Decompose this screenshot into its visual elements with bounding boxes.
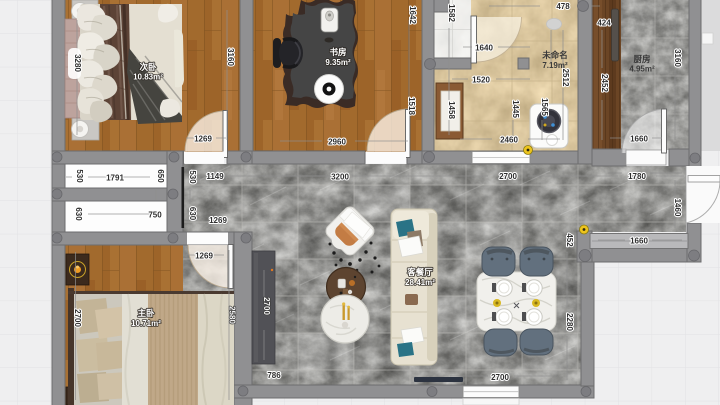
svg-text:530: 530 bbox=[188, 170, 197, 184]
svg-text:2700: 2700 bbox=[499, 172, 517, 181]
svg-text:主卧: 主卧 bbox=[137, 308, 155, 318]
svg-text:2512: 2512 bbox=[561, 69, 570, 87]
svg-text:650: 650 bbox=[156, 169, 165, 183]
svg-text:28.41m²: 28.41m² bbox=[405, 278, 435, 287]
svg-text:1460: 1460 bbox=[673, 199, 682, 217]
svg-text:书房: 书房 bbox=[329, 47, 346, 57]
svg-text:786: 786 bbox=[267, 371, 281, 380]
svg-text:1660: 1660 bbox=[630, 237, 648, 246]
svg-text:3160: 3160 bbox=[673, 49, 682, 67]
svg-text:2700: 2700 bbox=[73, 309, 82, 327]
svg-text:1642: 1642 bbox=[408, 6, 417, 24]
svg-text:530: 530 bbox=[75, 169, 84, 183]
svg-text:2580: 2580 bbox=[228, 306, 237, 324]
svg-text:1458: 1458 bbox=[447, 101, 456, 119]
svg-text:1565: 1565 bbox=[540, 98, 549, 116]
svg-text:2960: 2960 bbox=[328, 138, 346, 147]
svg-text:3200: 3200 bbox=[331, 173, 349, 182]
svg-text:厨房: 厨房 bbox=[633, 54, 650, 64]
svg-text:630: 630 bbox=[188, 207, 197, 221]
svg-text:630: 630 bbox=[74, 207, 83, 221]
svg-text:1640: 1640 bbox=[475, 44, 493, 53]
svg-text:478: 478 bbox=[556, 2, 570, 11]
svg-text:客餐厅: 客餐厅 bbox=[406, 267, 433, 277]
svg-text:2460: 2460 bbox=[500, 136, 518, 145]
svg-text:424: 424 bbox=[597, 19, 611, 28]
svg-text:9.35m²: 9.35m² bbox=[325, 58, 351, 67]
svg-text:未命名: 未命名 bbox=[541, 50, 568, 60]
svg-text:4.95m²: 4.95m² bbox=[629, 65, 655, 74]
svg-text:10.83m²: 10.83m² bbox=[133, 73, 163, 82]
svg-text:1445: 1445 bbox=[511, 100, 520, 118]
svg-text:1269: 1269 bbox=[209, 216, 227, 225]
svg-text:次卧: 次卧 bbox=[139, 62, 157, 72]
svg-text:2280: 2280 bbox=[565, 313, 574, 331]
svg-text:750: 750 bbox=[148, 211, 162, 220]
svg-text:1518: 1518 bbox=[407, 97, 416, 115]
svg-text:10.71m²: 10.71m² bbox=[131, 319, 161, 328]
svg-text:1660: 1660 bbox=[630, 135, 648, 144]
svg-text:3160: 3160 bbox=[226, 48, 235, 66]
svg-text:2700: 2700 bbox=[491, 373, 509, 382]
svg-text:1780: 1780 bbox=[628, 172, 646, 181]
svg-text:1269: 1269 bbox=[195, 252, 213, 261]
svg-text:1791: 1791 bbox=[106, 174, 124, 183]
svg-text:2700: 2700 bbox=[262, 297, 271, 315]
svg-text:3280: 3280 bbox=[73, 54, 82, 72]
svg-text:2452: 2452 bbox=[600, 74, 609, 92]
svg-text:1149: 1149 bbox=[206, 172, 224, 181]
svg-text:1269: 1269 bbox=[194, 135, 212, 144]
svg-text:452: 452 bbox=[565, 233, 574, 247]
svg-text:1520: 1520 bbox=[472, 76, 490, 85]
svg-text:1582: 1582 bbox=[447, 4, 456, 22]
svg-text:7.19m²: 7.19m² bbox=[542, 61, 568, 70]
